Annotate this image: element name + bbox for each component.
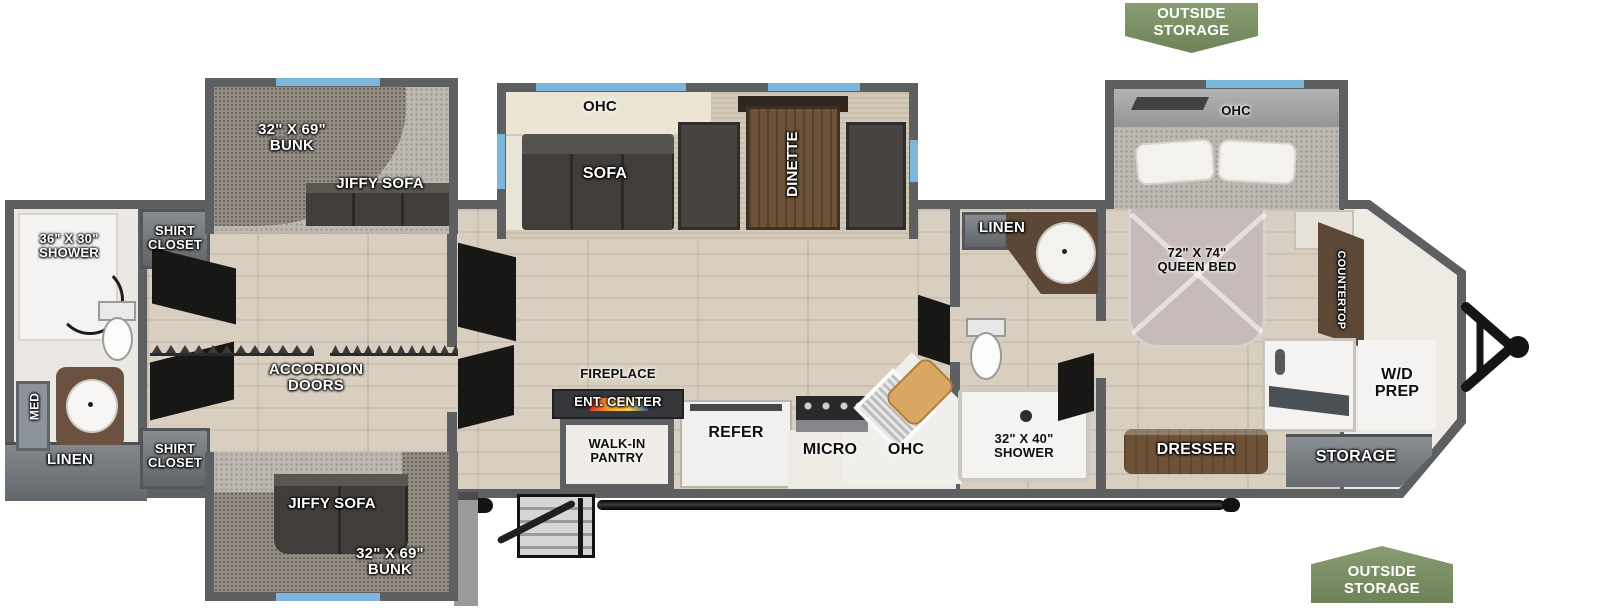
awning-end-cap [1222, 498, 1240, 512]
hitch-coupler [1507, 336, 1529, 358]
refer-handle [690, 404, 782, 411]
outside-storage-badge-bottom: OUTSIDE STORAGE [1311, 546, 1453, 603]
hitch-a-frame [1466, 307, 1512, 387]
dinette-bench-right [846, 122, 906, 230]
bunk-bottom-window [276, 593, 380, 601]
vanity-counter [1269, 383, 1349, 419]
step-post [578, 498, 583, 556]
dinette-bench-left [678, 122, 740, 230]
living-window-left [497, 134, 505, 189]
accordion-doors-label: ACCORDION DOORS [246, 362, 386, 394]
bunk-top-window [276, 78, 380, 86]
wall-midbath-right-bottom [1096, 378, 1106, 490]
rear-shower-label: 36" X 30" SHOWER [14, 232, 124, 260]
micro-label: MICRO [786, 441, 874, 458]
wd-prep-label: W/D PREP [1358, 366, 1436, 401]
outside-storage-badge-top: OUTSIDE STORAGE [1125, 3, 1258, 53]
accordion-door-left [150, 344, 314, 356]
living-window-1 [536, 83, 686, 91]
bunk-slide-top [205, 78, 458, 234]
mid-toilet-bowl [970, 332, 1002, 380]
mid-sink-drain [1062, 249, 1067, 254]
awning-rail [597, 500, 1225, 510]
jiffy-sofa-bottom-cushions [274, 474, 408, 554]
shower-head [1020, 410, 1032, 422]
ohc-bed-label: OHC [1196, 104, 1276, 118]
wardrobe-door-4 [458, 345, 514, 429]
living-window-right [910, 140, 918, 182]
queen-bed [1128, 206, 1266, 348]
shirt-closet-bottom-label: SHIRT CLOSET [138, 442, 212, 470]
rear-sink-drain [88, 402, 93, 407]
bath-door-2 [1058, 353, 1094, 421]
bath-door-1 [918, 295, 950, 365]
dinette-label: DINETTE [785, 94, 801, 234]
bunk-top-size-label: 32" X 69" BUNK [232, 122, 352, 154]
bed-window [1206, 80, 1304, 88]
ohc-kitchen-label: OHC [868, 441, 944, 458]
pillow-left [1135, 138, 1216, 185]
bed-slide [1105, 80, 1348, 209]
vanity-faucet [1275, 349, 1285, 375]
bunk-slide-bottom [205, 452, 458, 601]
shirt-closet-top-label: SHIRT CLOSET [138, 224, 212, 252]
rv-floorplan: 36" X 30" SHOWER MED LINEN SHIRT CLOSET … [0, 0, 1600, 614]
fireplace-label: FIREPLACE [552, 367, 684, 381]
med-label: MED [29, 376, 42, 436]
stove [796, 396, 868, 432]
bunk-top-jiffy-label: JIFFY SOFA [315, 176, 445, 192]
mid-shower-label: 32" X 40" SHOWER [958, 432, 1090, 460]
ent-center-label: ENT. CENTER [552, 395, 684, 409]
pillow-right [1217, 139, 1297, 185]
sofa-label: SOFA [545, 165, 665, 182]
bunk-bottom-jiffy-label: JIFFY SOFA [262, 496, 402, 512]
pantry-label: WALK-IN PANTRY [560, 437, 674, 465]
ohc-living-label: OHC [540, 99, 660, 115]
accordion-rail [150, 353, 314, 356]
accordion-door-right [330, 344, 458, 356]
mid-linen-label: LINEN [962, 220, 1042, 236]
wall-midbath-left-top [950, 209, 960, 307]
dresser-label: DRESSER [1124, 441, 1268, 458]
living-window-2 [768, 83, 860, 91]
rear-linen-label: LINEN [20, 452, 120, 468]
refer-label: REFER [680, 424, 792, 441]
accordion-rail [330, 353, 458, 356]
countertop-label: COUNTERTOP [1334, 220, 1346, 360]
rear-toilet-bowl [102, 317, 133, 361]
queen-bed-label: 72" X 74" QUEEN BED [1128, 246, 1266, 274]
refrigerator [680, 400, 792, 488]
wardrobe-door-3 [458, 243, 516, 341]
bunk-bottom-size-label: 32" X 69" BUNK [330, 546, 450, 578]
storage-label: STORAGE [1286, 448, 1426, 465]
